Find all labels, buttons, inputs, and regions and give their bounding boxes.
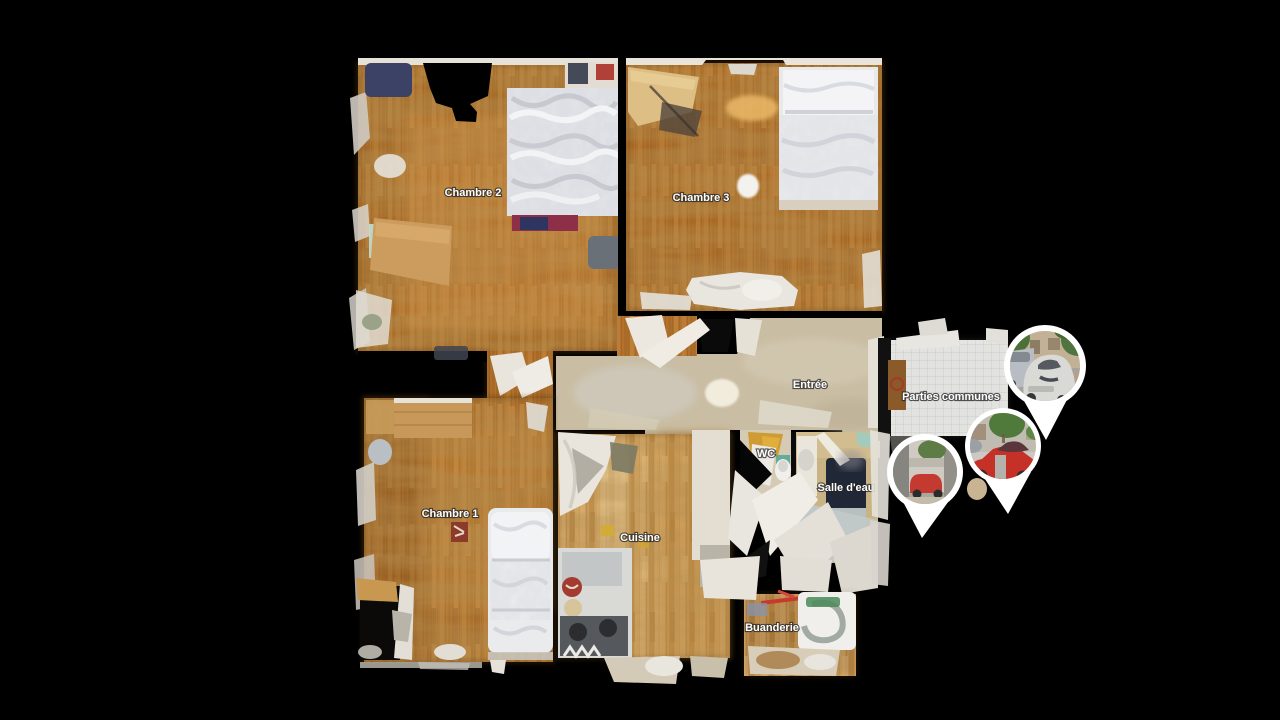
svg-text:Entrée: Entrée <box>793 379 827 391</box>
svg-text:Cuisine: Cuisine <box>620 532 660 544</box>
svg-text:Buanderie: Buanderie <box>745 622 799 634</box>
svg-text:Chambre 2: Chambre 2 <box>445 187 502 199</box>
svg-text:Chambre 1: Chambre 1 <box>422 508 479 520</box>
svg-text:Parties communes: Parties communes <box>902 391 1000 403</box>
svg-text:Salle d'eau: Salle d'eau <box>817 482 874 494</box>
svg-text:Chambre 3: Chambre 3 <box>673 192 730 204</box>
svg-text:WC: WC <box>757 448 775 460</box>
